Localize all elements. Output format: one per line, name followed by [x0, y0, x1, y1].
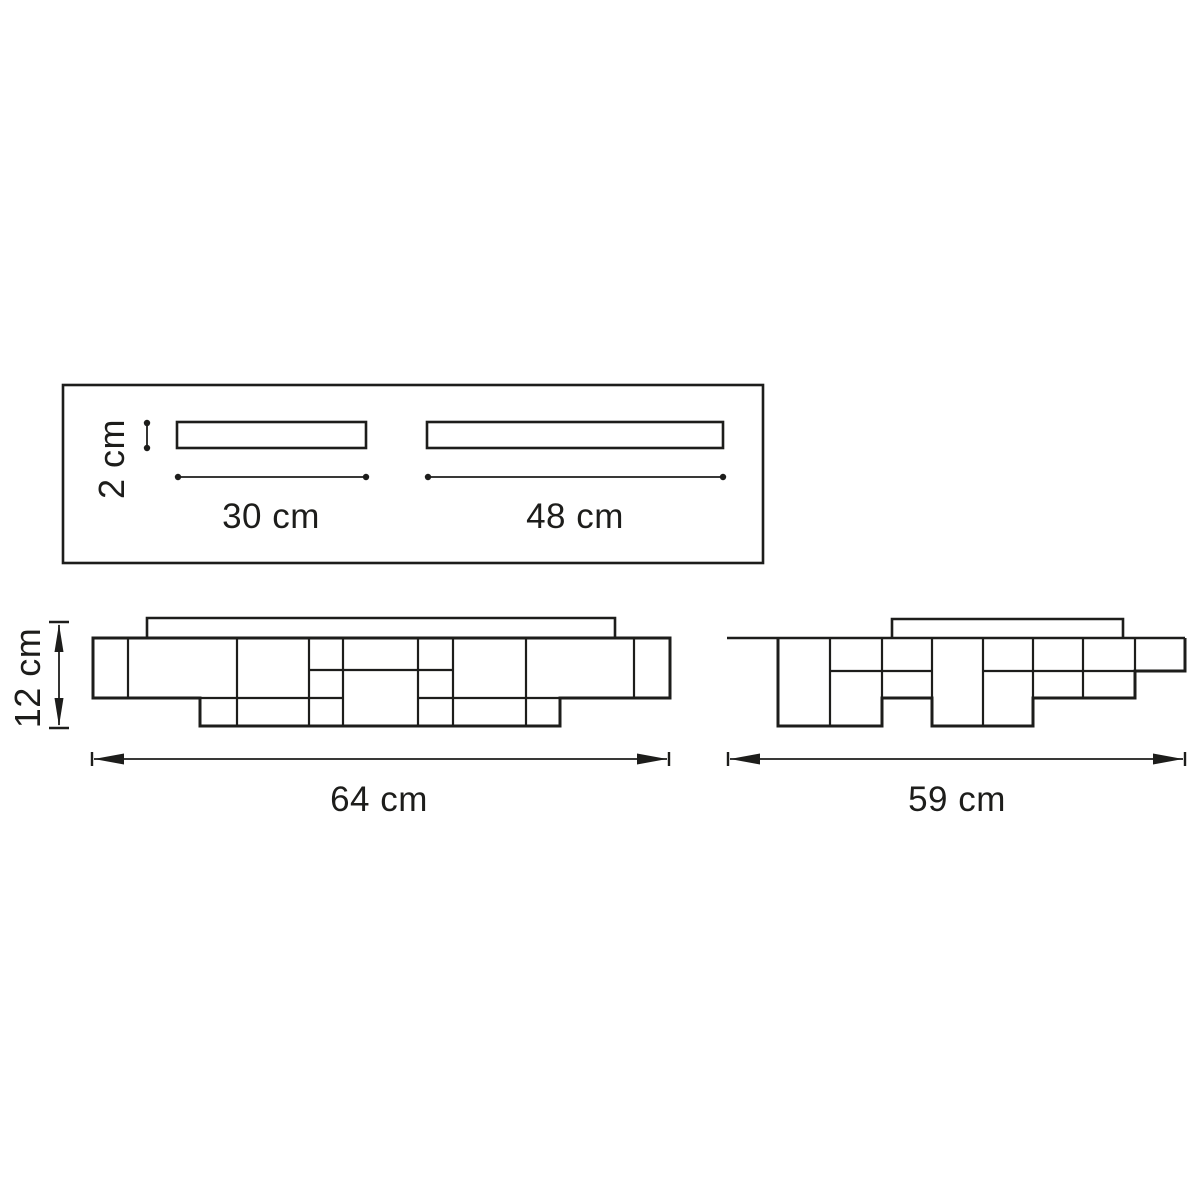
top-view-outline [63, 385, 763, 563]
dim-48cm [425, 474, 726, 480]
dim-30cm [175, 474, 369, 480]
lamp-slat-2 [427, 422, 723, 448]
side-view [727, 619, 1185, 766]
dim-endpoint-dot [425, 474, 431, 480]
dim-endpoint-dot [363, 474, 369, 480]
arrowhead-down-icon [55, 698, 64, 726]
front-view-canopy [147, 618, 615, 638]
front-view-panel-verticals [128, 638, 634, 726]
arrowhead-left-icon [94, 754, 124, 765]
side-view-panel-verticals [830, 638, 1135, 726]
linework [49, 385, 1185, 766]
label-side-width: 59 cm [908, 780, 1006, 819]
front-view-panel-horizontals [200, 670, 560, 698]
arrowhead-up-icon [55, 624, 64, 652]
label-front-width: 64 cm [330, 780, 428, 819]
lamp-slat-1 [177, 422, 366, 448]
dim-endpoint-dot [175, 474, 181, 480]
label-slat1-length: 30 cm [222, 497, 320, 536]
label-slat-thickness: 2 cm [91, 419, 132, 499]
label-front-height: 12 cm [7, 628, 48, 729]
dimension-drawing: 2 cm 30 cm 48 cm 12 cm 64 cm 59 cm [0, 0, 1200, 1200]
dim-2cm [144, 420, 150, 451]
dim-59cm [728, 752, 1185, 766]
front-view-outline [93, 638, 670, 726]
dim-12cm [49, 622, 69, 728]
arrowhead-left-icon [730, 754, 760, 765]
label-slat2-length: 48 cm [526, 497, 624, 536]
dim-endpoint-dot [144, 445, 150, 451]
dim-endpoint-dot [144, 420, 150, 426]
side-view-canopy [892, 619, 1123, 638]
top-view [63, 385, 763, 563]
arrowhead-right-icon [1153, 754, 1183, 765]
dim-endpoint-dot [720, 474, 726, 480]
side-view-outline [778, 638, 1185, 726]
front-view [49, 618, 670, 766]
arrowhead-right-icon [637, 754, 667, 765]
dim-64cm [92, 752, 669, 766]
drawing-canvas: 2 cm 30 cm 48 cm 12 cm 64 cm 59 cm [0, 0, 1200, 1200]
